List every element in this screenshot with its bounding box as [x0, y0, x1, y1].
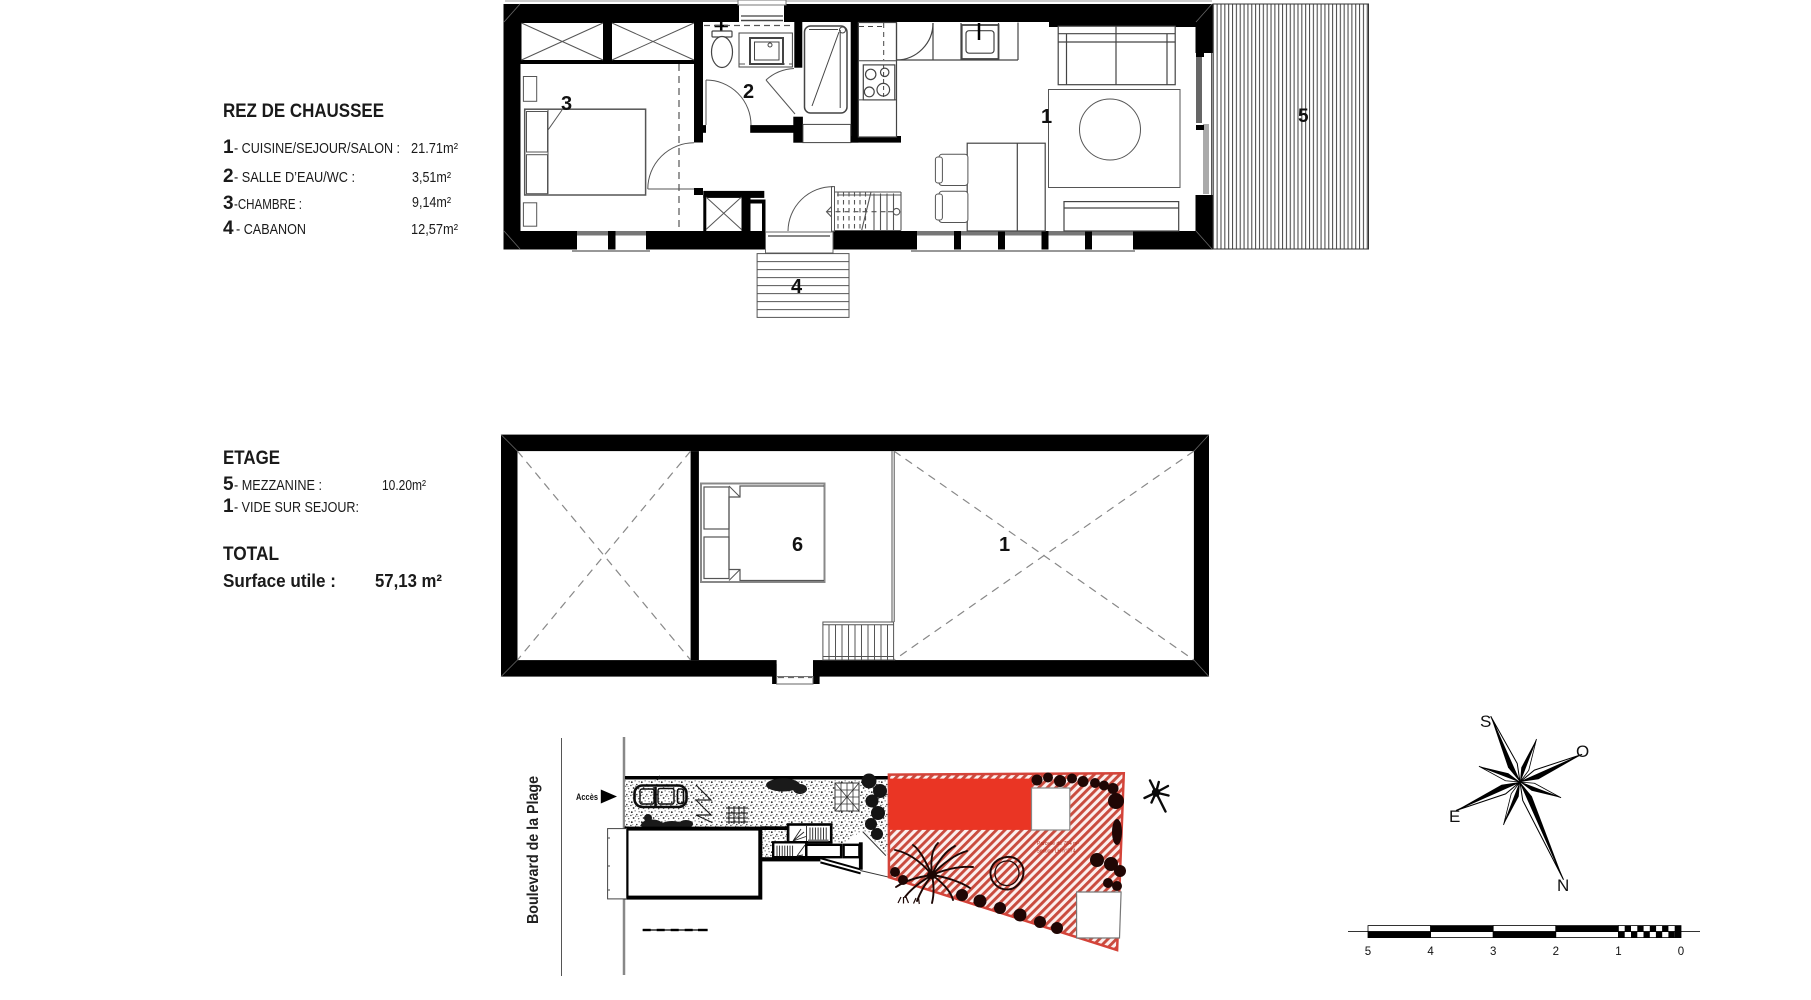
svg-text:2: 2 — [223, 166, 234, 187]
svg-text:1: 1 — [223, 137, 234, 158]
svg-text:1: 1 — [223, 496, 234, 517]
svg-text:-CHAMBRE :: -CHAMBRE : — [234, 197, 302, 213]
svg-text:3: 3 — [223, 193, 234, 214]
svg-text:- CABANON: - CABANON — [236, 222, 306, 238]
svg-text:10.20m²: 10.20m² — [382, 478, 426, 494]
svg-text:Section LH n°274: Section LH n°274 — [1037, 849, 1076, 855]
svg-text:9,14m²: 9,14m² — [412, 195, 451, 211]
svg-text:- MEZZANINE :: - MEZZANINE : — [234, 478, 322, 494]
svg-text:2: 2 — [1553, 946, 1559, 958]
svg-text:57,13 m²: 57,13 m² — [375, 571, 442, 591]
svg-text:- SALLE D’EAU/WC :: - SALLE D’EAU/WC : — [234, 170, 355, 186]
svg-text:3,51m²: 3,51m² — [412, 170, 451, 186]
svg-text:5: 5 — [223, 474, 234, 495]
svg-text:E: E — [1449, 807, 1460, 826]
svg-text:REZ DE CHAUSSEE: REZ DE CHAUSSEE — [223, 100, 384, 122]
svg-text:- CUISINE/SEJOUR/SALON :: - CUISINE/SEJOUR/SALON : — [234, 141, 400, 157]
svg-text:12,57m²: 12,57m² — [411, 222, 458, 238]
svg-text:4: 4 — [791, 276, 803, 298]
svg-text:4: 4 — [1427, 946, 1434, 958]
svg-text:TOTAL: TOTAL — [223, 543, 279, 565]
svg-text:Parcelle de 754 m²: Parcelle de 754 m² — [1037, 841, 1079, 847]
svg-text:Accès: Accès — [576, 792, 598, 803]
svg-text:1: 1 — [1615, 946, 1621, 958]
svg-text:1: 1 — [999, 534, 1010, 556]
svg-text:1: 1 — [1041, 106, 1052, 128]
svg-text:4: 4 — [223, 218, 234, 239]
svg-text:5: 5 — [1365, 946, 1371, 958]
svg-text:ETAGE: ETAGE — [223, 447, 280, 469]
svg-text:2: 2 — [743, 81, 754, 103]
svg-text:3: 3 — [561, 93, 572, 115]
svg-text:Surface utile :: Surface utile : — [223, 571, 336, 591]
svg-text:O: O — [1576, 742, 1589, 761]
svg-text:21.71m²: 21.71m² — [411, 141, 458, 157]
svg-text:5: 5 — [1298, 106, 1309, 127]
svg-text:S: S — [1480, 712, 1491, 731]
svg-text:0: 0 — [1678, 946, 1684, 958]
svg-text:Boulevard de la Plage: Boulevard de la Plage — [525, 776, 542, 924]
svg-text:3: 3 — [1490, 946, 1496, 958]
svg-text:- VIDE SUR SEJOUR:: - VIDE SUR SEJOUR: — [234, 500, 359, 516]
svg-text:6: 6 — [792, 534, 803, 556]
svg-text:N: N — [1557, 876, 1569, 895]
